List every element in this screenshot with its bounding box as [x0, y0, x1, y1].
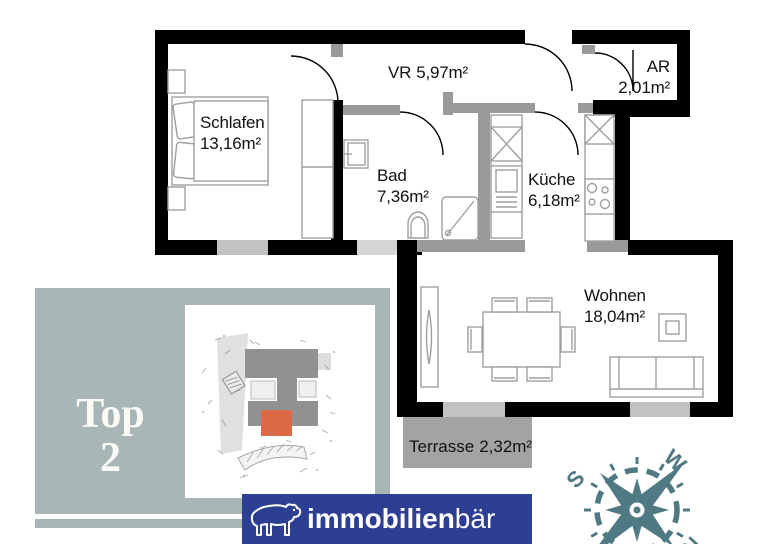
room-label-terrasse: Terrasse2,32m² — [409, 437, 537, 457]
room-name: Küche — [528, 169, 580, 190]
room-label-kueche: Küche 6,18m² — [528, 169, 580, 211]
company-logo: immobilienbär — [242, 494, 532, 544]
toilet — [408, 212, 428, 238]
room-area: 2,32m² — [479, 437, 532, 456]
compass-arm-n — [631, 478, 643, 510]
unit-badge-box: Top 2 — [35, 288, 390, 514]
kitchen-oven — [491, 166, 522, 212]
kitchen-oven-door — [496, 170, 517, 192]
compass-arm-se — [637, 510, 674, 544]
wall-living-left — [397, 240, 417, 417]
door-kitchen — [535, 112, 578, 155]
floor-plan-page: Top 2 — [0, 0, 770, 544]
bath-sink-basin — [348, 143, 365, 165]
bath-sink — [344, 140, 368, 168]
wall-bath-bottom — [417, 240, 525, 252]
logo-wordmark: immobilienbär — [307, 505, 495, 533]
compass-arm-s — [631, 510, 643, 542]
wall-mid-right — [628, 240, 733, 255]
kitchen-tall-unit-left — [491, 127, 522, 161]
window-living-right — [630, 402, 690, 417]
side-table — [659, 314, 686, 341]
compass-ticks — [584, 457, 690, 544]
chair-top-2 — [527, 298, 552, 312]
wall-bath-top-a — [343, 105, 400, 115]
room-area: 13,16m² — [200, 133, 265, 154]
room-label-bad: Bad 7,36m² — [377, 165, 429, 207]
room-name: Terrasse — [409, 437, 474, 456]
jamb-ar-door — [582, 45, 595, 54]
door-bedroom — [291, 56, 338, 103]
site-plan-panel — [185, 305, 375, 498]
unit-badge-line1: Top — [38, 392, 183, 436]
wall-bottom-c — [397, 240, 422, 255]
compass-arm-ne — [637, 462, 685, 510]
window-bedroom — [217, 240, 268, 255]
chair-bottom-1 — [492, 367, 517, 381]
compass-arm-sw — [589, 510, 637, 544]
wall-kitchen-bottom — [587, 240, 628, 252]
logo-text-light: bär — [455, 503, 495, 534]
chair-left — [468, 327, 482, 352]
living-cabinet-plant — [427, 310, 432, 364]
window-bath — [357, 240, 397, 255]
chair-bottom-2 — [527, 367, 552, 381]
living-cabinet — [421, 287, 438, 387]
wall-bottom-b — [268, 240, 357, 255]
nightstand-bottom — [168, 187, 185, 210]
compass-arm-e — [637, 504, 669, 516]
dining-table — [483, 312, 560, 367]
wall-kitchen-right — [615, 115, 630, 245]
room-name: AR — [598, 56, 670, 77]
interior-walls — [331, 44, 628, 252]
wall-ar-bottom — [593, 100, 690, 117]
kitchen-tall-unit-right — [585, 115, 614, 144]
room-area: 5,97m² — [416, 63, 468, 82]
burner-3 — [589, 199, 595, 205]
chair-right — [561, 327, 575, 352]
wardrobe — [302, 100, 333, 238]
door-bath — [400, 112, 443, 155]
kitchen-counter-left — [491, 115, 522, 238]
kitchen-counter-right — [585, 115, 614, 241]
room-label-schlafen: Schlafen 13,16m² — [200, 112, 265, 154]
wall-vr-kitchen-stub — [578, 103, 593, 113]
room-label-vr: VR5,97m² — [388, 62, 473, 83]
pillow-left — [173, 102, 199, 140]
room-name: Wohnen — [584, 285, 646, 306]
room-area: 6,18m² — [528, 190, 580, 211]
sofa — [610, 357, 703, 397]
compass-letter-west: W — [659, 444, 691, 477]
compass-rose: S W N — [561, 444, 706, 544]
bear-icon — [249, 499, 303, 539]
room-label-ar: AR 2,01m² — [598, 56, 670, 98]
chair-top-1 — [492, 298, 517, 312]
door-arcs — [291, 44, 633, 155]
burner-2 — [602, 187, 608, 193]
badge-underline-bar — [35, 519, 247, 528]
kitchen-stove — [585, 179, 614, 214]
room-area: 2,01m² — [598, 77, 670, 98]
burner-1 — [588, 184, 597, 193]
side-table-inner — [666, 321, 679, 334]
wall-bedroom-right — [331, 100, 343, 242]
wall-bottom-a — [155, 240, 217, 255]
compass-arm-nw — [600, 473, 637, 510]
room-area: 7,36m² — [377, 186, 429, 207]
nightstand-top — [168, 70, 185, 93]
room-name: Schlafen — [200, 112, 265, 133]
burner-4 — [601, 200, 610, 209]
shower — [442, 197, 478, 240]
shower-diagonal — [446, 201, 474, 236]
unit-badge-label: Top 2 — [38, 392, 183, 480]
door-entrance — [525, 44, 572, 91]
wall-top-left — [155, 30, 525, 44]
unit-badge-line2: 2 — [38, 436, 183, 480]
wall-living-bottom-a — [397, 402, 443, 417]
sofa-cushion-lines — [610, 357, 703, 389]
window-living-left — [443, 402, 505, 417]
compass-letters: S W N — [561, 444, 706, 544]
room-area: 18,04m² — [584, 306, 646, 327]
compass-letter-north: N — [677, 532, 706, 544]
wall-left — [155, 30, 168, 255]
wall-top-right — [572, 30, 690, 44]
wall-living-right — [718, 240, 733, 417]
pillow-right — [173, 142, 198, 179]
compass-arm-w — [605, 504, 637, 516]
wall-living-bottom-c — [690, 402, 733, 417]
logo-text-bold: immobilien — [307, 503, 455, 534]
kitchen-oven-vents — [496, 197, 517, 207]
jamb-bath-door — [443, 92, 453, 115]
compass-ring — [597, 470, 677, 544]
room-name: Bad — [377, 165, 429, 186]
jamb-bedroom-door — [331, 44, 343, 57]
compass-letter-south: S — [561, 465, 589, 493]
wall-bath-kitchen — [478, 113, 490, 242]
room-name: VR — [388, 63, 411, 82]
shower-drain — [446, 231, 451, 236]
wall-bath-top-b — [443, 103, 535, 113]
wall-living-bottom-b — [505, 402, 630, 417]
wall-ar-right — [677, 30, 690, 110]
room-label-wohnen: Wohnen 18,04m² — [584, 285, 646, 327]
compass-star — [589, 462, 685, 544]
